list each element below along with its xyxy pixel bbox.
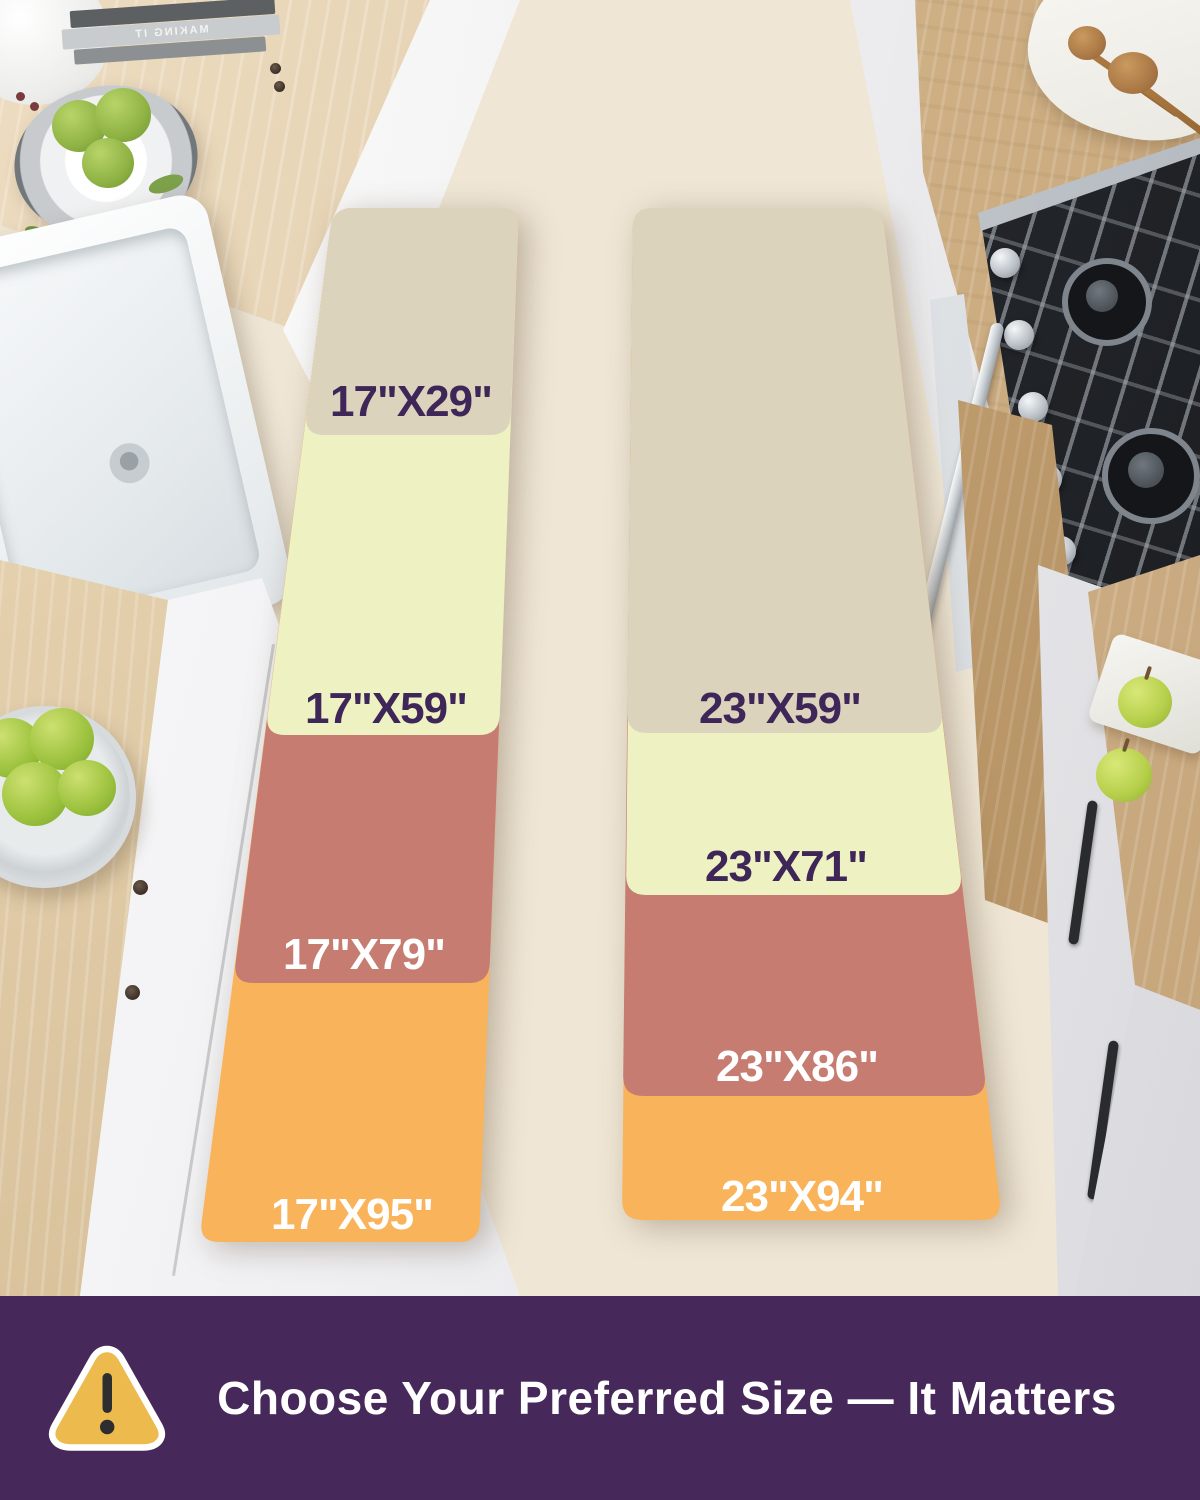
left-runner-label-17x79: 17"X79"	[283, 930, 445, 979]
runner-size-overlay: 17"X29" 17"X59" 17"X79" 17"X95" 23"X59" …	[0, 0, 1200, 1500]
left-runner-label-17x95: 17"X95"	[271, 1190, 433, 1239]
right-runner-label-23x94: 23"X94"	[721, 1172, 883, 1221]
right-runner: 23"X59" 23"X71" 23"X86" 23"X94"	[622, 208, 1000, 1221]
right-runner-size-23x59	[627, 208, 942, 733]
warning-triangle-icon	[46, 1340, 168, 1457]
banner-text: Choose Your Preferred Size — It Matters	[168, 1371, 1200, 1425]
right-runner-label-23x59: 23"X59"	[699, 684, 861, 733]
right-runner-label-23x71: 23"X71"	[705, 842, 867, 891]
left-runner-label-17x29: 17"X29"	[330, 377, 492, 426]
product-size-infographic: MAKING IT	[0, 0, 1200, 1500]
right-runner-label-23x86: 23"X86"	[716, 1042, 878, 1091]
left-runner-label-17x59: 17"X59"	[305, 684, 467, 733]
size-warning-banner: Choose Your Preferred Size — It Matters	[0, 1296, 1200, 1500]
left-runner: 17"X29" 17"X59" 17"X79" 17"X95"	[201, 208, 518, 1242]
